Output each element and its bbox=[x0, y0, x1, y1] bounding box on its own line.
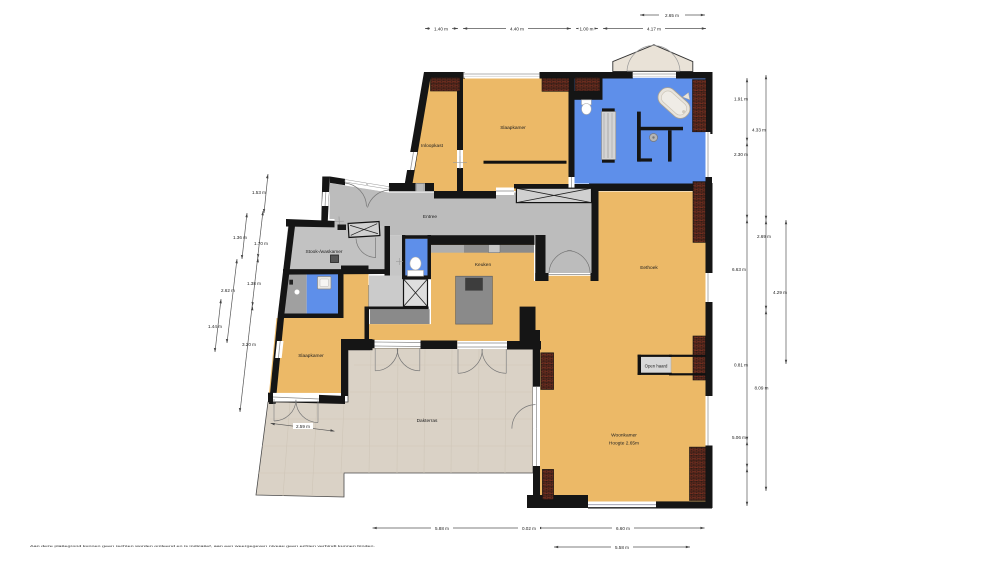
svg-text:0.81 m: 0.81 m bbox=[734, 363, 748, 368]
svg-text:Inloopkast: Inloopkast bbox=[421, 143, 444, 149]
svg-text:Slaapkamer: Slaapkamer bbox=[500, 125, 526, 131]
svg-text:1.00 m: 1.00 m bbox=[579, 26, 593, 31]
svg-text:1.40 m: 1.40 m bbox=[434, 26, 448, 31]
svg-text:Stook-/waskamer: Stook-/waskamer bbox=[305, 249, 342, 255]
svg-text:2.30 m: 2.30 m bbox=[734, 152, 748, 157]
svg-text:Entree: Entree bbox=[423, 214, 437, 220]
svg-text:Slaapkamer: Slaapkamer bbox=[298, 353, 324, 359]
svg-text:1.36 m: 1.36 m bbox=[233, 235, 247, 240]
svg-text:0.02 m: 0.02 m bbox=[522, 526, 536, 531]
svg-text:5.88 m: 5.88 m bbox=[435, 526, 449, 531]
svg-text:5.06 m: 5.06 m bbox=[732, 435, 746, 440]
svg-text:Hoogte 2.65m: Hoogte 2.65m bbox=[609, 441, 639, 447]
svg-text:5.58 m: 5.58 m bbox=[615, 545, 629, 550]
svg-text:Keuken: Keuken bbox=[475, 262, 492, 268]
svg-text:8.09 m: 8.09 m bbox=[754, 386, 768, 391]
svg-text:6.63 m: 6.63 m bbox=[732, 267, 746, 272]
svg-text:Aan deze plattegrond kunnen ge: Aan deze plattegrond kunnen geen rechten… bbox=[30, 544, 375, 548]
svg-text:2.62 m: 2.62 m bbox=[221, 288, 235, 293]
svg-text:2.59 m: 2.59 m bbox=[296, 424, 310, 429]
svg-text:1.53 m: 1.53 m bbox=[252, 190, 266, 195]
svg-text:4.17 m: 4.17 m bbox=[647, 26, 661, 31]
svg-text:4.29 m: 4.29 m bbox=[773, 290, 787, 295]
svg-text:4.33 m: 4.33 m bbox=[752, 128, 766, 133]
svg-text:Woonkamer: Woonkamer bbox=[611, 433, 637, 439]
svg-text:3.20 m: 3.20 m bbox=[242, 342, 256, 347]
svg-text:Eethoek: Eethoek bbox=[640, 265, 658, 271]
svg-text:1.44 m: 1.44 m bbox=[208, 324, 222, 329]
svg-text:4.40 m: 4.40 m bbox=[510, 26, 524, 31]
svg-text:1.70 m: 1.70 m bbox=[254, 241, 268, 246]
svg-text:2.69 m: 2.69 m bbox=[757, 234, 771, 239]
svg-text:Dakterras: Dakterras bbox=[417, 418, 438, 424]
svg-text:6.60 m: 6.60 m bbox=[616, 526, 630, 531]
svg-text:2.65 m: 2.65 m bbox=[665, 13, 679, 18]
svg-text:1.91 m: 1.91 m bbox=[734, 97, 748, 102]
svg-text:Open haard: Open haard bbox=[645, 363, 668, 368]
svg-text:1.38 m: 1.38 m bbox=[247, 281, 261, 286]
